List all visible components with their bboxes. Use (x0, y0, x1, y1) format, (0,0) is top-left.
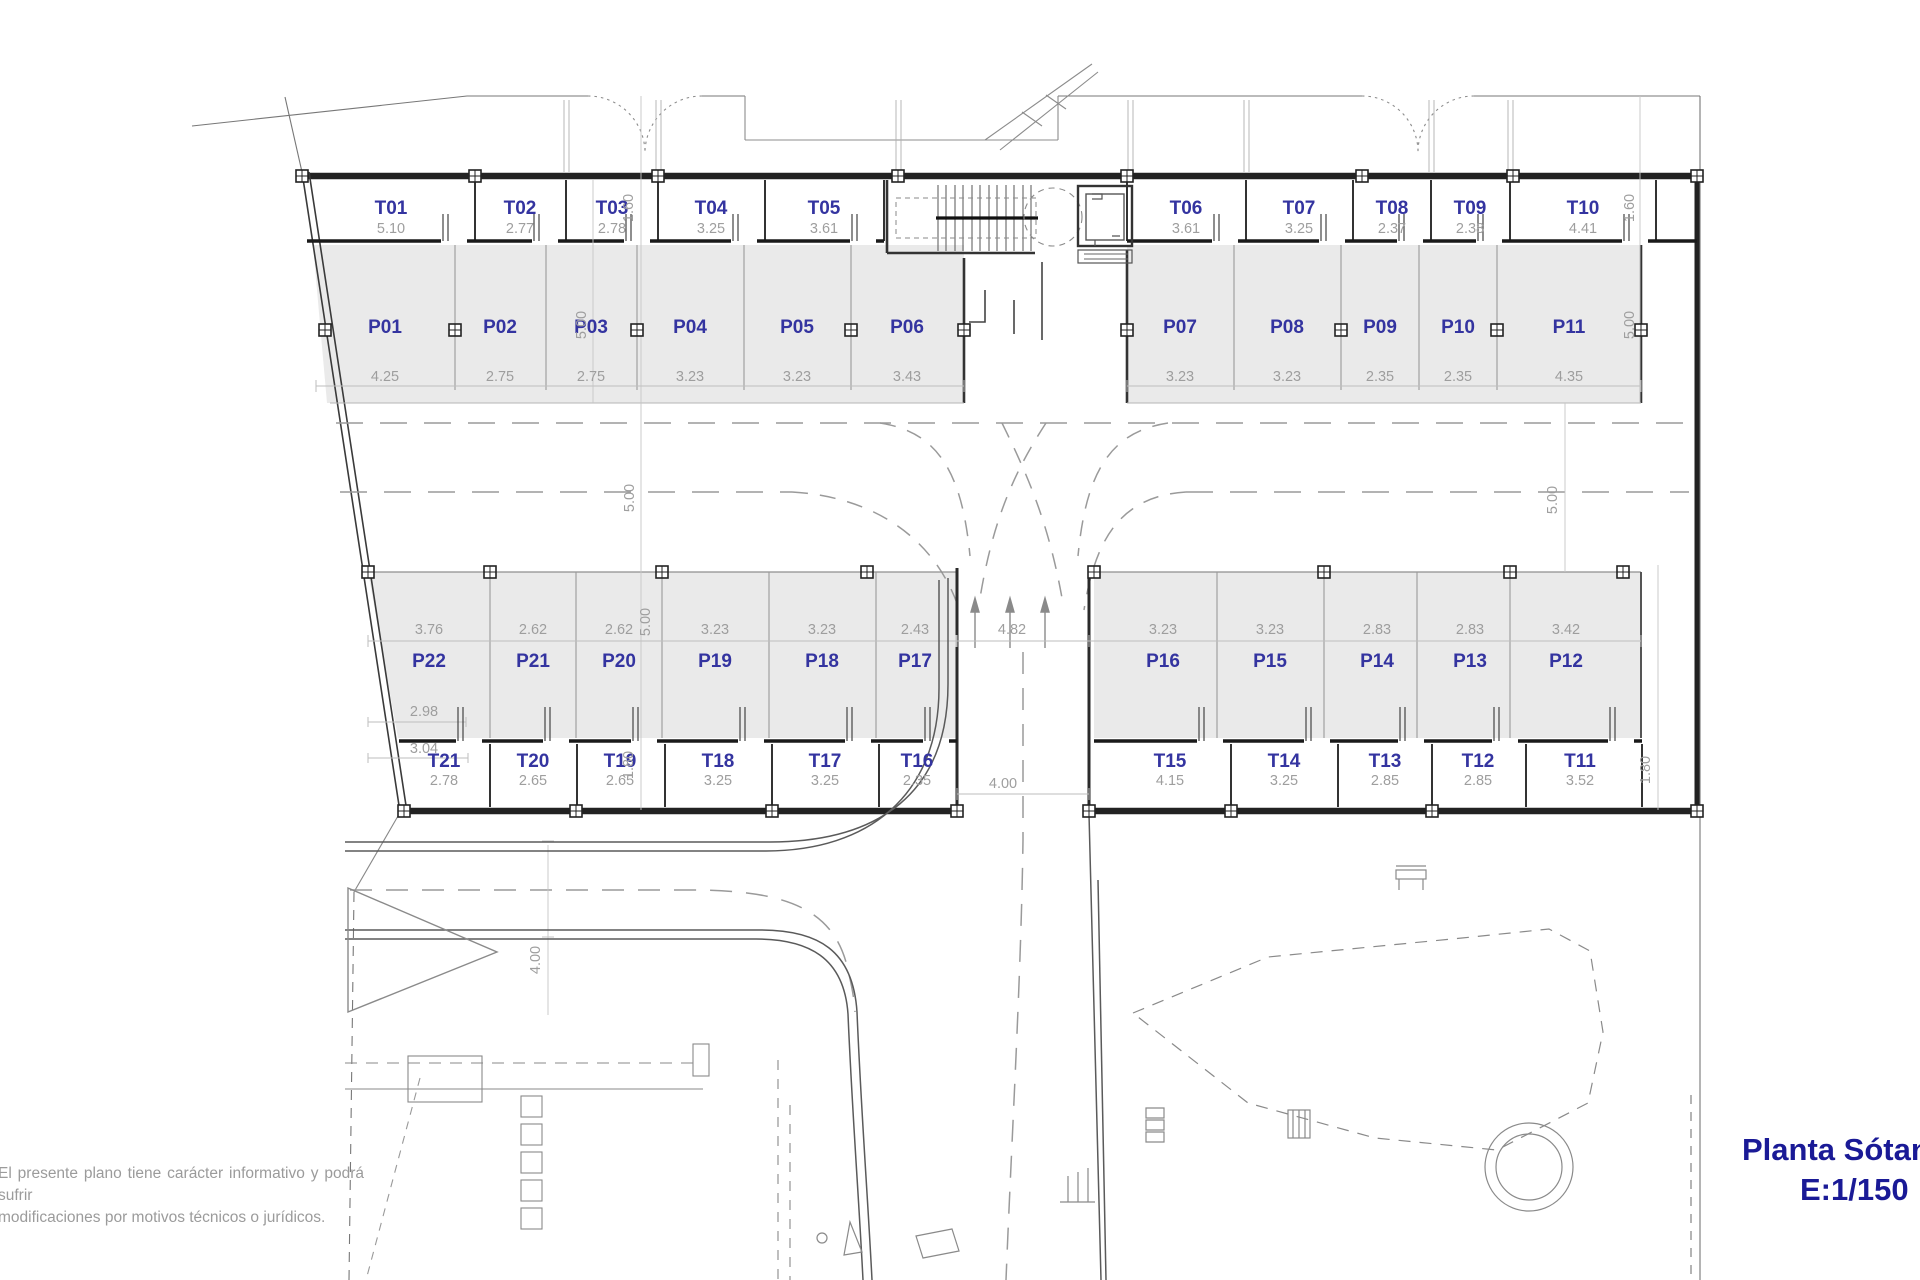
dim-P06: 3.43 (893, 369, 921, 385)
label-T12: T12 (1462, 751, 1495, 772)
top-context (564, 64, 1513, 172)
label-P08: P08 (1270, 317, 1304, 338)
dim-T02: 2.77 (506, 221, 534, 237)
dim-T05: 3.61 (810, 221, 838, 237)
label-P04: P04 (673, 317, 707, 338)
dim-P21: 2.62 (519, 622, 547, 638)
dim-P09: 2.35 (1366, 369, 1394, 385)
label-P17: P17 (898, 651, 932, 672)
site-context-bottom-right (1133, 866, 1603, 1211)
label-P10: P10 (1441, 317, 1475, 338)
label-T01: T01 (375, 198, 408, 219)
storage-bottom-dims: 2.78 2.65 2.65 3.25 3.25 2.35 4.00 4.15 … (430, 773, 1594, 792)
site-context-bottom-left (345, 1044, 790, 1280)
storage-top-labels: T01 T02 T03 T04 T05 T06 T07 T08 T09 T10 (375, 198, 1600, 219)
dim-T17: 3.25 (811, 773, 839, 789)
dim-v180-left: 1.80 (621, 751, 637, 779)
label-T13: T13 (1369, 751, 1402, 772)
label-T15: T15 (1154, 751, 1187, 772)
label-P19: P19 (698, 651, 732, 672)
dim-v160-right: 1.60 (1622, 194, 1638, 222)
plan-title: Planta Sótano (1742, 1130, 1920, 1170)
dim-aisle-left: 5.00 (622, 484, 638, 512)
disclaimer-line2: modificaciones por motivos técnicos o ju… (0, 1207, 364, 1229)
dim-P15: 3.23 (1256, 622, 1284, 638)
dim-P13: 2.83 (1456, 622, 1484, 638)
dim-road: 4.00 (528, 946, 544, 974)
dim-ramp: 4.00 (989, 776, 1017, 792)
floorplan-canvas: T01 T02 T03 T04 T05 T06 T07 T08 T09 T10 … (0, 0, 1920, 1280)
dim-P02: 2.75 (486, 369, 514, 385)
label-P15: P15 (1253, 651, 1287, 672)
dim-T06: 3.61 (1172, 221, 1200, 237)
dim-P14: 2.83 (1363, 622, 1391, 638)
dim-v160-left: 1.60 (621, 194, 637, 222)
label-T08: T08 (1376, 198, 1409, 219)
dim-v180-right: 1.80 (1638, 756, 1654, 784)
label-P13: P13 (1453, 651, 1487, 672)
dim-junction: 4.82 (998, 622, 1026, 638)
dim-P01: 4.25 (371, 369, 399, 385)
dim-P10: 2.35 (1444, 369, 1472, 385)
label-T14: T14 (1268, 751, 1301, 772)
dim-T10: 4.41 (1569, 221, 1597, 237)
label-P16: P16 (1146, 651, 1180, 672)
road-ramp-triangle (348, 888, 497, 1012)
dim-T03: 2.78 (598, 221, 626, 237)
disclaimer-line1: El presente plano tiene carácter informa… (0, 1163, 364, 1207)
dim-P03: 2.75 (577, 369, 605, 385)
label-T10: T10 (1567, 198, 1600, 219)
label-P12: P12 (1549, 651, 1583, 672)
label-P22: P22 (412, 651, 446, 672)
label-T02: T02 (504, 198, 537, 219)
dim-stall-bottom-left: 5.00 (638, 608, 654, 636)
dim-T15: 4.15 (1156, 773, 1184, 789)
dim-P17: 2.43 (901, 622, 929, 638)
label-P20: P20 (602, 651, 636, 672)
label-T05: T05 (808, 198, 841, 219)
dim-T21: 2.78 (430, 773, 458, 789)
label-T18: T18 (702, 751, 735, 772)
label-T07: T07 (1283, 198, 1316, 219)
dim-P04: 3.23 (676, 369, 704, 385)
title-block: Planta Sótano E:1/150 (1742, 1130, 1920, 1210)
elevator (1078, 186, 1132, 263)
label-T20: T20 (517, 751, 550, 772)
label-T11: T11 (1564, 751, 1596, 772)
dim-P12: 3.42 (1552, 622, 1580, 638)
label-P11: P11 (1553, 317, 1586, 338)
dim-aisle-right: 5.00 (1545, 486, 1561, 514)
label-P07: P07 (1163, 317, 1197, 338)
dim-P05: 3.23 (783, 369, 811, 385)
dim-bay-left: 5.00 (574, 311, 590, 339)
dim-P20: 2.62 (605, 622, 633, 638)
label-P14: P14 (1360, 651, 1394, 672)
dim-T13: 2.85 (1371, 773, 1399, 789)
dim-P22: 3.76 (415, 622, 443, 638)
label-T04: T04 (695, 198, 728, 219)
dim-P16: 3.23 (1149, 622, 1177, 638)
label-P05: P05 (780, 317, 814, 338)
label-T17: T17 (809, 751, 842, 772)
label-P21: P21 (516, 651, 550, 672)
dim-T14: 3.25 (1270, 773, 1298, 789)
dim-T09: 2.38 (1456, 221, 1484, 237)
dim-T04: 3.25 (697, 221, 725, 237)
label-P01: P01 (368, 317, 402, 338)
label-T16: T16 (901, 751, 934, 772)
floorplan-drawing: T01 T02 T03 T04 T05 T06 T07 T08 T09 T10 … (0, 0, 1920, 1280)
dim-P19: 3.23 (701, 622, 729, 638)
storage-top-dims: 5.10 2.77 2.78 3.25 3.61 3.61 3.25 2.37 … (377, 221, 1597, 237)
dim-P11: 4.35 (1555, 369, 1583, 385)
label-T21: T21 (428, 751, 461, 772)
dim-T20: 2.65 (519, 773, 547, 789)
dim-P18: 3.23 (808, 622, 836, 638)
dim-T08: 2.37 (1378, 221, 1406, 237)
label-T06: T06 (1170, 198, 1203, 219)
label-P02: P02 (483, 317, 517, 338)
label-P18: P18 (805, 651, 839, 672)
label-P06: P06 (890, 317, 924, 338)
dim-P07: 3.23 (1166, 369, 1194, 385)
disclaimer-note: El presente plano tiene carácter informa… (0, 1163, 364, 1229)
plan-scale: E:1/150 (1742, 1170, 1920, 1210)
dim-bay-right: 5.00 (1622, 311, 1638, 339)
dim-P08: 3.23 (1273, 369, 1301, 385)
dim-T01: 5.10 (377, 221, 405, 237)
label-P09: P09 (1363, 317, 1397, 338)
label-T09: T09 (1454, 198, 1487, 219)
dim-T07: 3.25 (1285, 221, 1313, 237)
dim-T12: 2.85 (1464, 773, 1492, 789)
dim-T11: 3.52 (1566, 773, 1594, 789)
dim-T18: 3.25 (704, 773, 732, 789)
dim-T16: 2.35 (903, 773, 931, 789)
storage-bottom-labels: T21 T20 T19 T18 T17 T16 T15 T14 T13 T12 … (428, 751, 1597, 772)
dim-p22-a: 2.98 (410, 704, 438, 720)
